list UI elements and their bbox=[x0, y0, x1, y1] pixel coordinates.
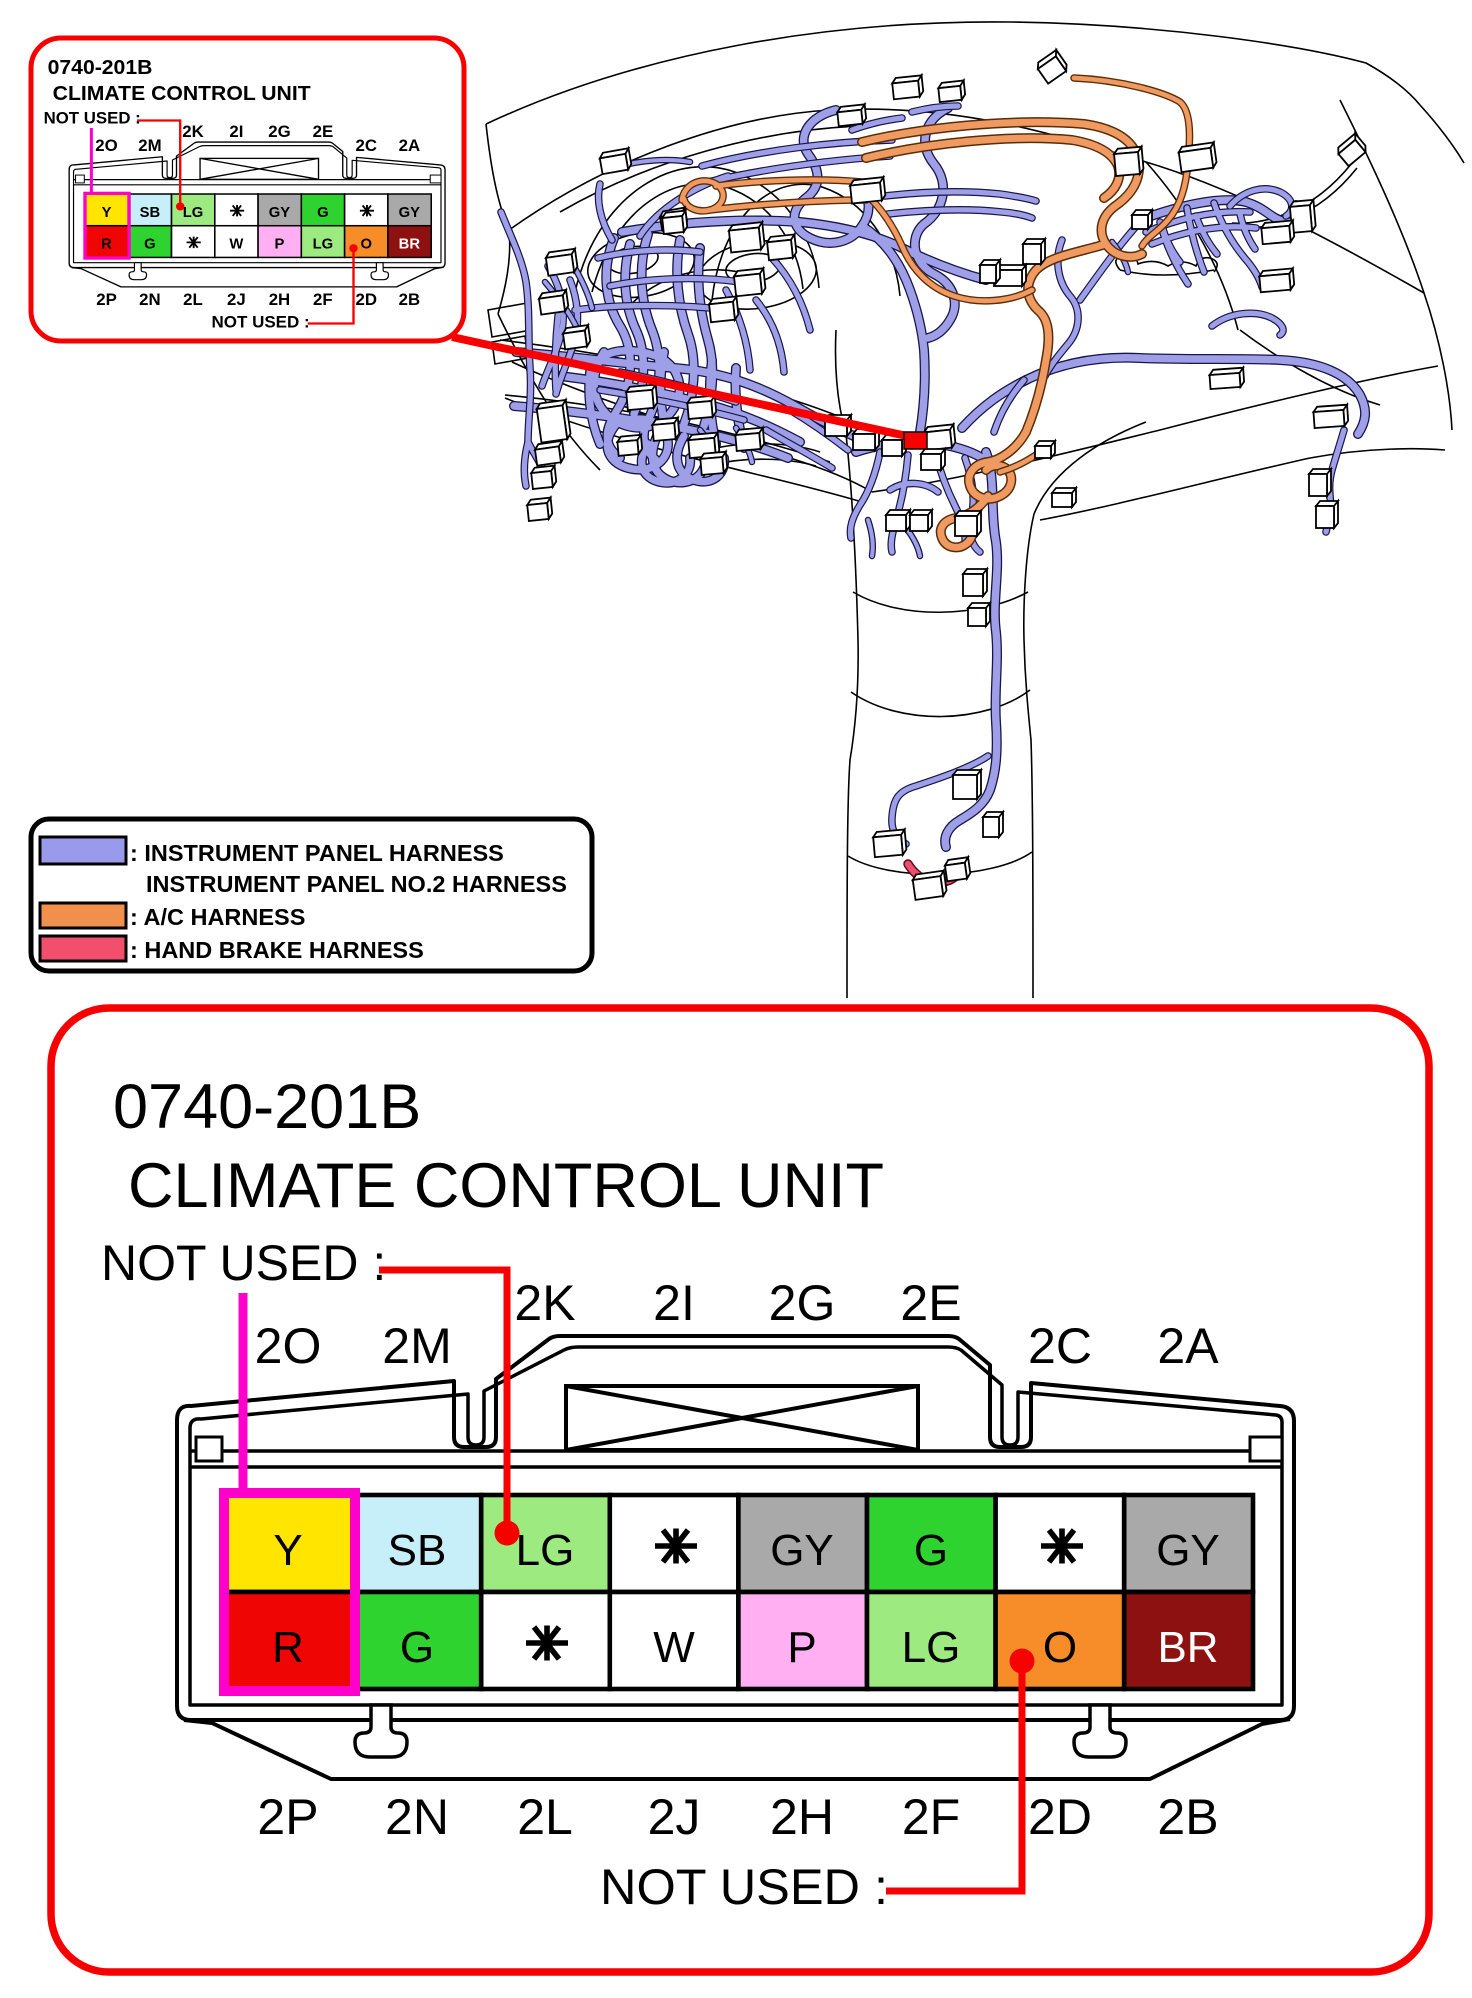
svg-text:INSTRUMENT PANEL NO.2 HARNESS: INSTRUMENT PANEL NO.2 HARNESS bbox=[146, 871, 567, 897]
svg-text:: HAND BRAKE HARNESS: : HAND BRAKE HARNESS bbox=[130, 937, 424, 963]
svg-text:: INSTRUMENT PANEL HARNESS: : INSTRUMENT PANEL HARNESS bbox=[130, 840, 504, 866]
svg-text:: A/C HARNESS: : A/C HARNESS bbox=[130, 904, 305, 930]
